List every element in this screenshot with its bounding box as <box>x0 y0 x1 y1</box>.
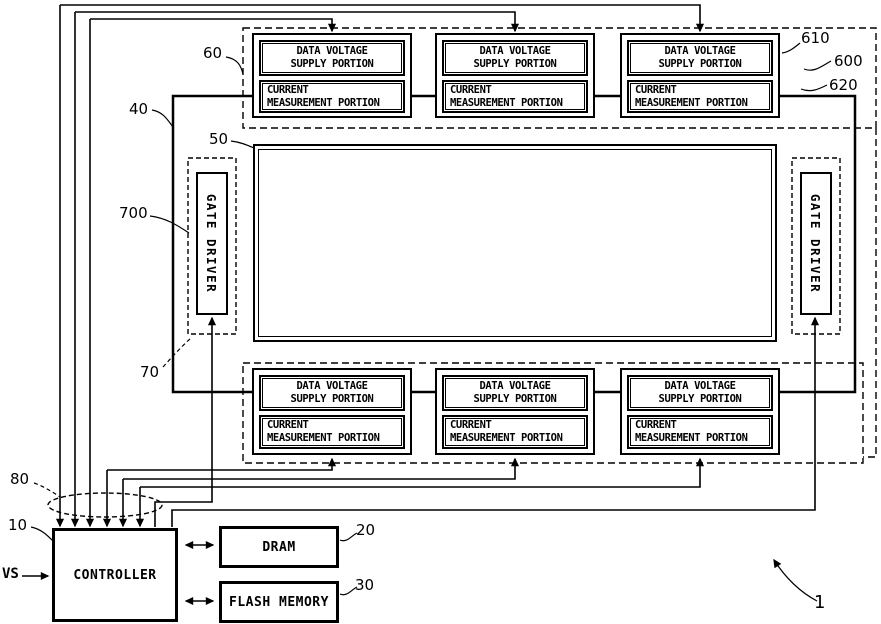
leader-60 <box>226 57 243 74</box>
current-measurement-line2: MEASUREMENT PORTION <box>450 97 563 110</box>
ref-label-620: 620 <box>829 76 858 94</box>
vs-signal-label: VS <box>2 566 19 582</box>
patent-figure: DATA VOLTAGESUPPLY PORTION CURRENTMEASUR… <box>0 0 881 624</box>
data-voltage-supply-portion: DATA VOLTAGESUPPLY PORTION <box>442 375 588 411</box>
data-voltage-supply-line1: DATA VOLTAGE <box>296 380 367 393</box>
ref-label-60: 60 <box>203 44 222 62</box>
current-measurement-line2: MEASUREMENT PORTION <box>267 97 380 110</box>
current-measurement-line2: MEASUREMENT PORTION <box>635 432 748 445</box>
leader-70 <box>163 338 191 367</box>
leader-620 <box>801 85 827 91</box>
data-voltage-supply-line1: DATA VOLTAGE <box>664 380 735 393</box>
data-voltage-supply-portion: DATA VOLTAGESUPPLY PORTION <box>259 40 405 76</box>
current-measurement-line1: CURRENT <box>450 419 491 432</box>
ref-label-20: 20 <box>356 521 375 539</box>
dram-label: DRAM <box>262 540 295 555</box>
current-measurement-portion: CURRENTMEASUREMENT PORTION <box>627 415 773 449</box>
leader-610 <box>782 43 800 53</box>
data-voltage-supply-line1: DATA VOLTAGE <box>296 45 367 58</box>
data-voltage-supply-line1: DATA VOLTAGE <box>664 45 735 58</box>
source-driver-group-top-1: DATA VOLTAGESUPPLY PORTION CURRENTMEASUR… <box>252 33 412 118</box>
gate-driver-left: GATE DRIVER <box>196 172 228 315</box>
source-driver-group-top-3: DATA VOLTAGESUPPLY PORTION CURRENTMEASUR… <box>620 33 780 118</box>
current-measurement-line1: CURRENT <box>267 419 308 432</box>
data-voltage-supply-line2: SUPPLY PORTION <box>474 393 557 406</box>
controller-box: CONTROLLER <box>52 528 178 622</box>
source-driver-group-bottom-3: DATA VOLTAGESUPPLY PORTION CURRENTMEASUR… <box>620 368 780 455</box>
leader-20 <box>340 533 357 541</box>
wire-left-gate-driver <box>155 318 212 527</box>
current-measurement-line1: CURRENT <box>635 84 676 97</box>
current-measurement-line2: MEASUREMENT PORTION <box>450 432 563 445</box>
ref-label-70: 70 <box>140 363 159 381</box>
wire-bottom-supply-2 <box>123 459 515 479</box>
ref-label-30: 30 <box>355 576 374 594</box>
data-voltage-supply-line1: DATA VOLTAGE <box>479 380 550 393</box>
display-panel-inner-border <box>258 149 772 337</box>
data-voltage-supply-line1: DATA VOLTAGE <box>479 45 550 58</box>
data-voltage-supply-portion: DATA VOLTAGESUPPLY PORTION <box>442 40 588 76</box>
current-measurement-line2: MEASUREMENT PORTION <box>267 432 380 445</box>
wire-top-supply-2 <box>75 12 515 31</box>
current-measurement-portion: CURRENTMEASUREMENT PORTION <box>442 80 588 113</box>
gate-driver-right-label: GATE DRIVER <box>809 194 824 293</box>
source-driver-group-top-2: DATA VOLTAGESUPPLY PORTION CURRENTMEASUR… <box>435 33 595 118</box>
wire-top-supply-3 <box>60 5 700 31</box>
current-measurement-portion: CURRENTMEASUREMENT PORTION <box>442 415 588 449</box>
data-voltage-supply-line2: SUPPLY PORTION <box>291 393 374 406</box>
wire-bottom-supply-1 <box>107 459 332 470</box>
dram-box: DRAM <box>219 526 339 568</box>
wire-bottom-supply-3 <box>140 459 700 487</box>
ref-label-50: 50 <box>209 130 228 148</box>
controller-label: CONTROLLER <box>73 568 156 583</box>
data-voltage-supply-portion: DATA VOLTAGESUPPLY PORTION <box>627 40 773 76</box>
gate-driver-left-label: GATE DRIVER <box>205 194 220 293</box>
current-measurement-portion: CURRENTMEASUREMENT PORTION <box>259 415 405 449</box>
figure-number-arrow <box>774 560 817 601</box>
current-measurement-portion: CURRENTMEASUREMENT PORTION <box>259 80 405 113</box>
flash-memory-label: FLASH MEMORY <box>229 595 329 610</box>
display-panel <box>253 144 777 342</box>
source-driver-group-bottom-2: DATA VOLTAGESUPPLY PORTION CURRENTMEASUR… <box>435 368 595 455</box>
data-voltage-supply-line2: SUPPLY PORTION <box>291 58 374 71</box>
data-voltage-supply-portion: DATA VOLTAGESUPPLY PORTION <box>259 375 405 411</box>
flash-memory-box: FLASH MEMORY <box>219 581 339 623</box>
leader-600 <box>804 61 831 70</box>
data-voltage-supply-line2: SUPPLY PORTION <box>659 393 742 406</box>
data-voltage-supply-line2: SUPPLY PORTION <box>659 58 742 71</box>
leader-10 <box>31 527 53 541</box>
current-measurement-line1: CURRENT <box>635 419 676 432</box>
leader-50 <box>231 141 254 148</box>
leader-700 <box>150 216 189 233</box>
right-dashed-boundary <box>863 128 876 457</box>
ref-label-10: 10 <box>8 516 27 534</box>
current-measurement-portion: CURRENTMEASUREMENT PORTION <box>627 80 773 113</box>
data-voltage-supply-portion: DATA VOLTAGESUPPLY PORTION <box>627 375 773 411</box>
current-measurement-line1: CURRENT <box>267 84 308 97</box>
ref-label-80: 80 <box>10 470 29 488</box>
current-measurement-line2: MEASUREMENT PORTION <box>635 97 748 110</box>
ref-label-700: 700 <box>119 204 148 222</box>
ref-label-1: 1 <box>814 592 825 613</box>
ref-label-600: 600 <box>834 52 863 70</box>
data-voltage-supply-line2: SUPPLY PORTION <box>474 58 557 71</box>
wire-top-supply-1 <box>90 19 332 31</box>
ref-label-40: 40 <box>129 100 148 118</box>
leader-40 <box>152 110 173 127</box>
signal-bundle-ellipse <box>48 493 162 517</box>
current-measurement-line1: CURRENT <box>450 84 491 97</box>
ref-label-610: 610 <box>801 29 830 47</box>
leader-80 <box>34 483 60 497</box>
gate-driver-right: GATE DRIVER <box>800 172 832 315</box>
source-driver-group-bottom-1: DATA VOLTAGESUPPLY PORTION CURRENTMEASUR… <box>252 368 412 455</box>
